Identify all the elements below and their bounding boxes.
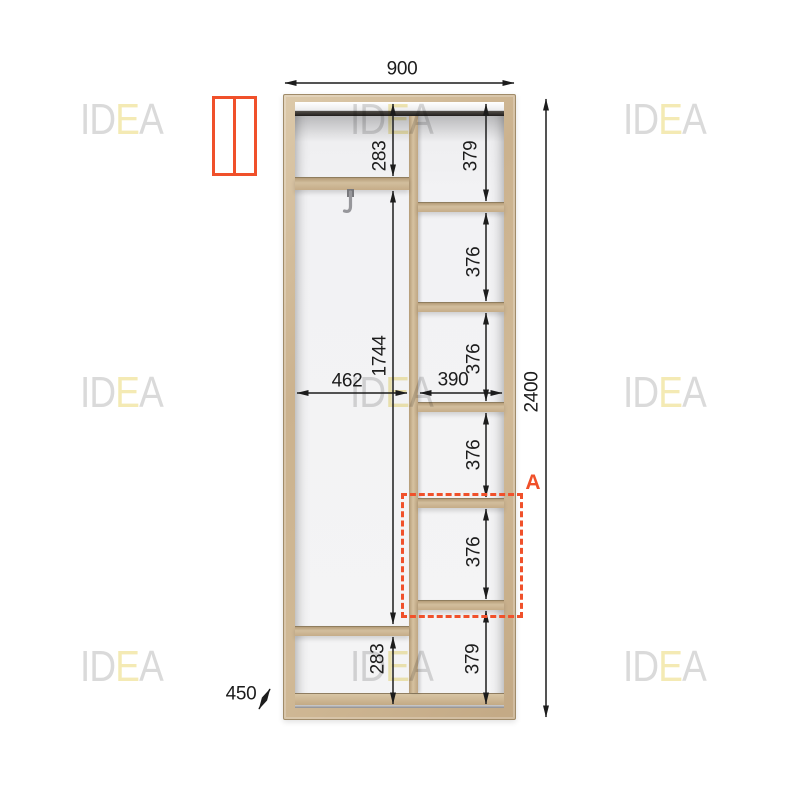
- detail-section-label: A: [525, 471, 540, 495]
- idea-watermark: IDEA: [80, 98, 163, 142]
- dim-label-height: 2400: [523, 371, 542, 412]
- detail-section-box: [401, 493, 523, 618]
- wardrobe-technical-drawing: IDEA IDEA IDEA IDEA IDEA IDEA IDEA IDEA …: [0, 0, 800, 800]
- door-split-line: [233, 99, 236, 173]
- dim-label-right-379-bottom: 379: [464, 644, 483, 675]
- dim-label-depth: 450: [226, 685, 257, 704]
- dim-label-right-376-2: 376: [465, 344, 484, 375]
- idea-watermark: IDEA: [80, 371, 163, 415]
- shelf-left-top: [295, 177, 409, 190]
- idea-watermark: IDEA: [350, 645, 433, 689]
- idea-watermark: IDEA: [623, 371, 706, 415]
- bottom-door-rail: [295, 705, 504, 708]
- shelf-right-2: [418, 302, 504, 312]
- dim-label-right-379-top: 379: [462, 141, 481, 172]
- bottom-panel: [295, 693, 504, 705]
- idea-watermark: IDEA: [80, 645, 163, 689]
- dim-label-left-1744: 1744: [371, 335, 390, 376]
- dim-label-left-283-bottom: 283: [369, 644, 388, 675]
- two-door-icon: [212, 96, 257, 176]
- dim-label-width: 900: [387, 60, 418, 79]
- dim-label-left-283-top: 283: [371, 141, 390, 172]
- idea-watermark: IDEA: [350, 371, 433, 415]
- shelf-left-bottom: [295, 626, 409, 636]
- dim-line-depth-450: [259, 689, 270, 709]
- idea-watermark: IDEA: [350, 98, 433, 142]
- idea-watermark: IDEA: [623, 98, 706, 142]
- dim-label-right-376-1: 376: [465, 247, 484, 278]
- shelf-right-1: [418, 202, 504, 212]
- idea-watermark: IDEA: [623, 645, 706, 689]
- dim-label-left-width: 462: [332, 372, 363, 391]
- dim-label-right-376-3: 376: [465, 440, 484, 471]
